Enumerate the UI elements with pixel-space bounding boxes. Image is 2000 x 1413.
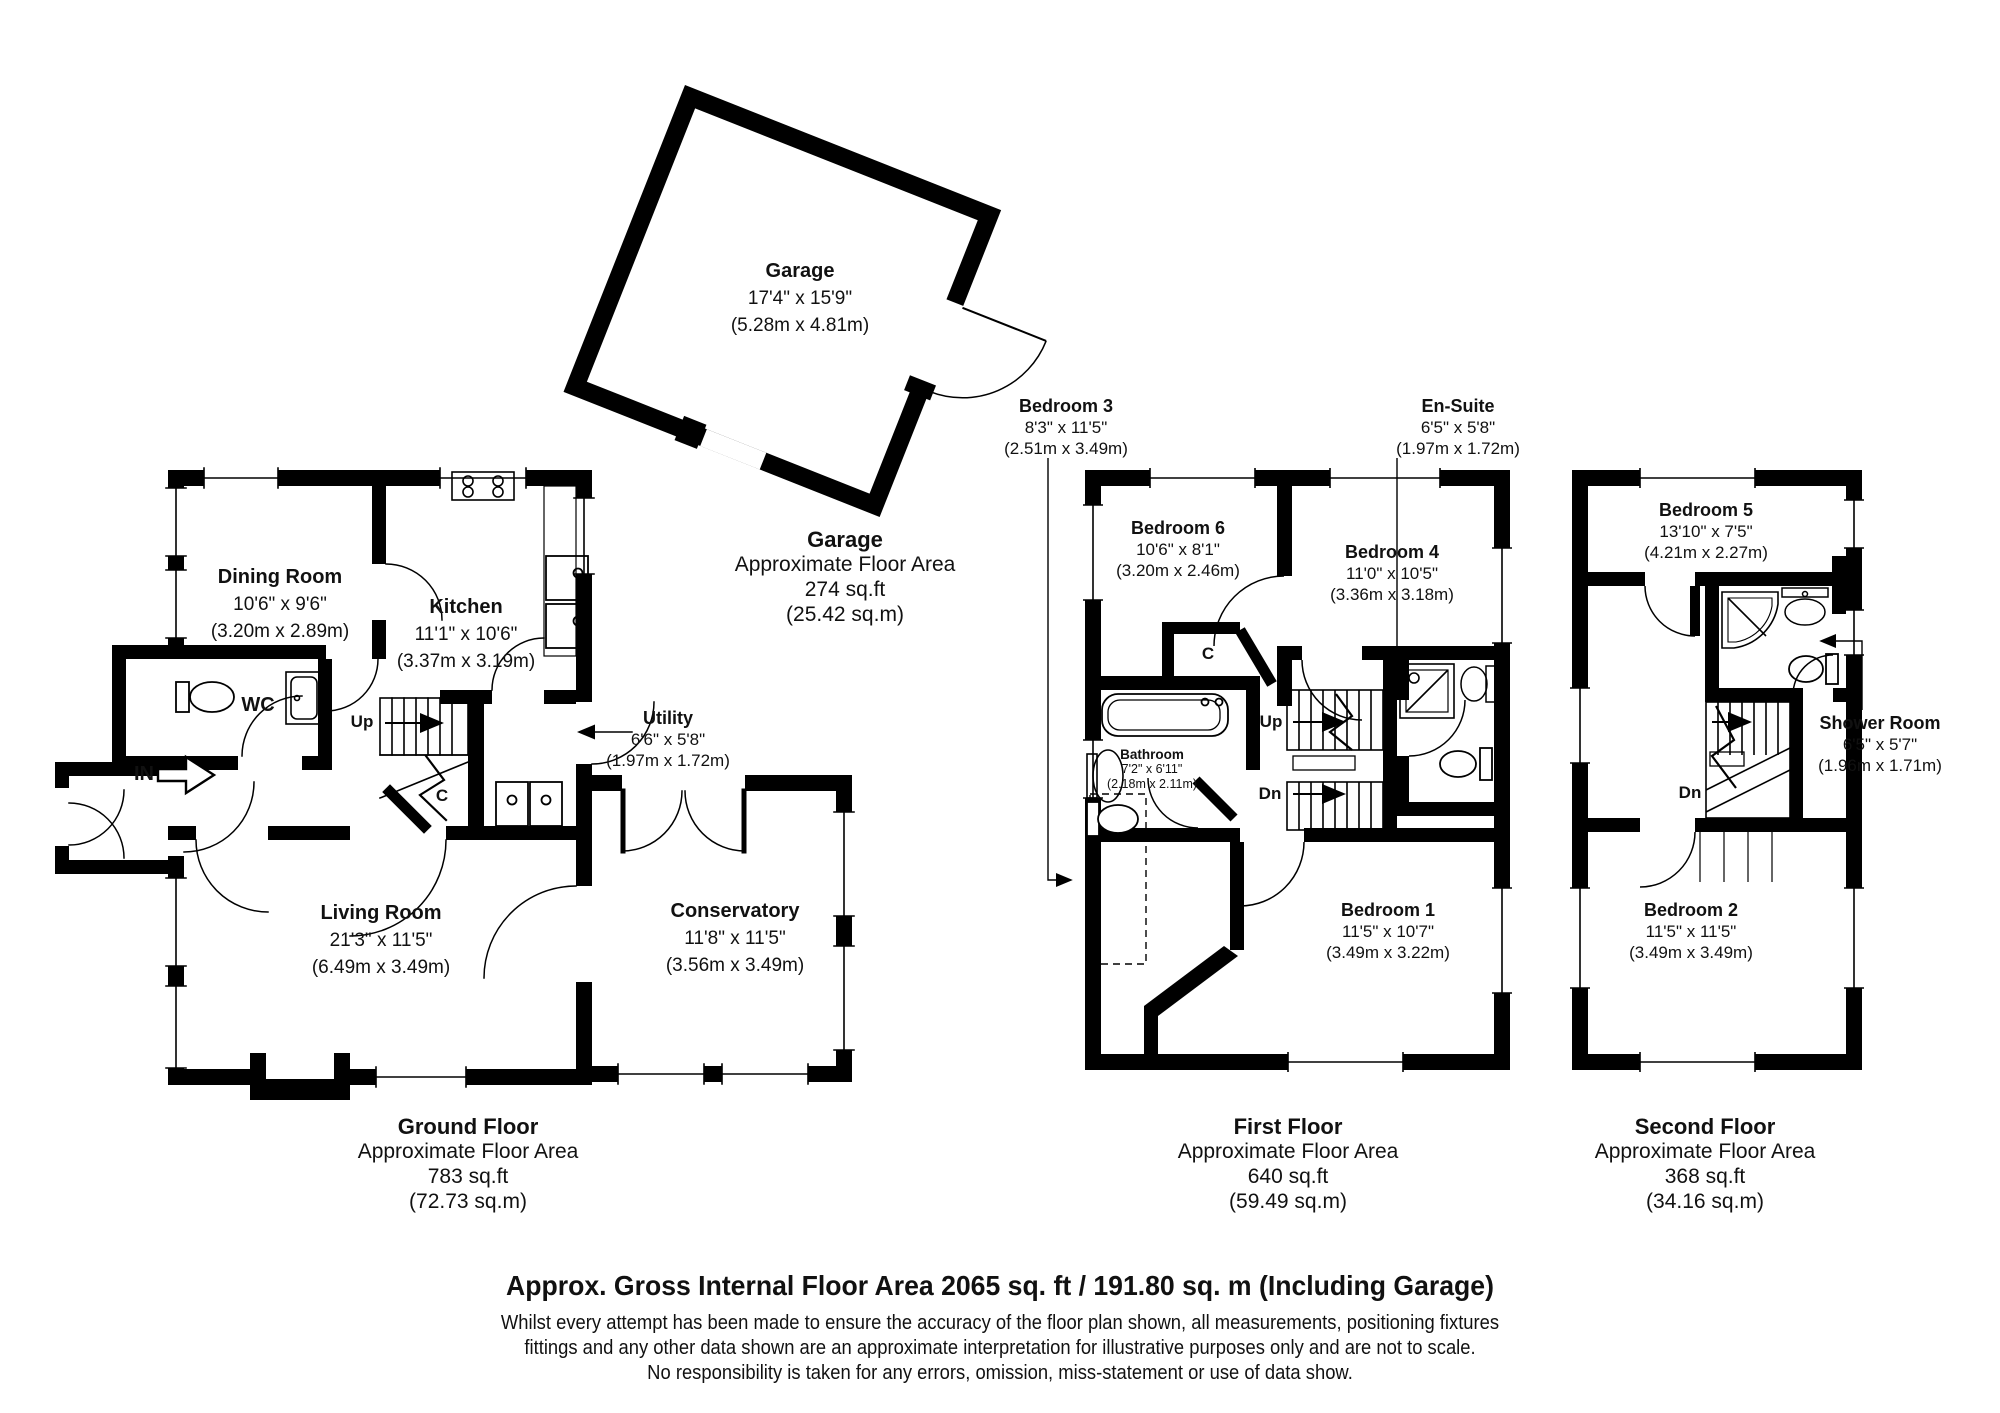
- room-name: Garage: [731, 258, 869, 285]
- bedroom-5-label: Bedroom 5 13'10" x 7'5" (4.21m x 2.27m): [1644, 500, 1768, 563]
- room-dims-m: (5.28m x 4.81m): [731, 312, 869, 339]
- bathroom-label: Bathroom 7'2" x 6'11" (2.18m x 2.11m): [1107, 747, 1197, 792]
- ensuite-toilet-icon: [1440, 748, 1492, 780]
- up-marker-ground: Up: [351, 712, 374, 732]
- stairs-first: [1287, 690, 1383, 830]
- bathroom-toilet-icon: [1087, 802, 1138, 836]
- first-floor-summary: First Floor Approximate Floor Area 640 s…: [1178, 1114, 1399, 1214]
- kitchen-label: Kitchen 11'1" x 10'6" (3.37m x 3.19m): [397, 594, 535, 675]
- dn-marker-first: Dn: [1259, 784, 1282, 804]
- ground-floor-summary: Ground Floor Approximate Floor Area 783 …: [358, 1114, 579, 1214]
- disclaimer-line-3: No responsibility is taken for any error…: [647, 1362, 1353, 1385]
- room-dims-ft: 17'4" x 15'9": [731, 285, 869, 312]
- closet-marker-first: C: [1202, 644, 1214, 664]
- utility-sink-icon: [496, 782, 562, 826]
- dining-room-label: Dining Room 10'6" x 9'6" (3.20m x 2.89m): [211, 564, 349, 645]
- garage-summary: Garage Approximate Floor Area 274 sq.ft …: [735, 527, 956, 627]
- ensuite-sink-icon: [1461, 666, 1496, 702]
- bedroom-3-label: Bedroom 3 8'3" x 11'5" (2.51m x 3.49m): [1004, 396, 1128, 459]
- entrance-in-label: IN: [134, 763, 154, 786]
- wc-toilet-icon: [176, 682, 234, 712]
- bedroom-1-label: Bedroom 1 11'5" x 10'7" (3.49m x 3.22m): [1326, 900, 1450, 963]
- utility-label: Utility 6'6" x 5'8" (1.97m x 1.72m): [606, 708, 730, 771]
- en-suite-label: En-Suite 6'5" x 5'8" (1.97m x 1.72m): [1396, 396, 1520, 459]
- stairs-second: [1700, 702, 1790, 882]
- shower-sink-icon: [1782, 588, 1828, 625]
- french-doors: [622, 791, 745, 851]
- garage-room-label: Garage 17'4" x 15'9" (5.28m x 4.81m): [731, 258, 869, 339]
- door-arcs-second: [1640, 586, 1833, 887]
- disclaimer-line-1: Whilst every attempt has been made to en…: [501, 1312, 1499, 1335]
- wc-label: WC: [241, 694, 274, 717]
- bedroom-2-label: Bedroom 2 11'5" x 11'5" (3.49m x 3.49m): [1629, 900, 1753, 963]
- bath-icon: [1102, 694, 1228, 736]
- up-marker-first: Up: [1260, 712, 1283, 732]
- dn-marker-second: Dn: [1679, 783, 1702, 803]
- floorplan-page: Garage 17'4" x 15'9" (5.28m x 4.81m) Gar…: [0, 0, 2000, 1413]
- gross-area-headline: Approx. Gross Internal Floor Area 2065 s…: [506, 1270, 1494, 1302]
- second-floor-summary: Second Floor Approximate Floor Area 368 …: [1595, 1114, 1816, 1214]
- disclaimer-line-2: fittings and any other data shown are an…: [524, 1337, 1475, 1360]
- closet-marker-ground: C: [436, 786, 448, 806]
- bedroom-4-label: Bedroom 4 11'0" x 10'5" (3.36m x 3.18m): [1330, 542, 1454, 605]
- corner-shower-icon: [1722, 592, 1778, 648]
- conservatory-label: Conservatory 11'8" x 11'5" (3.56m x 3.49…: [666, 898, 804, 979]
- living-room-label: Living Room 21'3" x 11'5" (6.49m x 3.49m…: [312, 900, 450, 981]
- shower-room-label: Shower Room 6'5" x 5'7" (1.96m x 1.71m): [1818, 713, 1942, 776]
- bedroom-6-label: Bedroom 6 10'6" x 8'1" (3.20m x 2.46m): [1116, 518, 1240, 581]
